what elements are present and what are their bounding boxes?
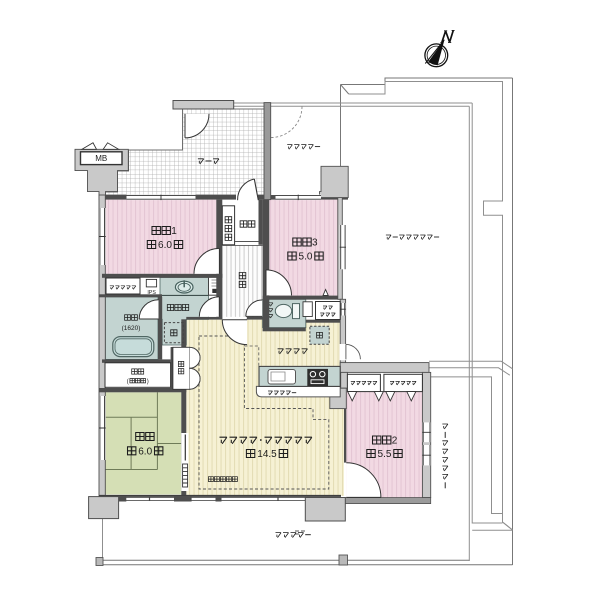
svg-text:14.5: 14.5 (257, 449, 277, 460)
svg-text:(: ( (127, 379, 129, 385)
svg-text:(1620): (1620) (122, 325, 141, 332)
svg-text:5.0: 5.0 (299, 252, 313, 263)
svg-text:MB: MB (95, 154, 107, 163)
svg-text:): ) (147, 379, 149, 385)
svg-text:1: 1 (171, 226, 177, 237)
svg-text:6.0: 6.0 (138, 446, 152, 457)
svg-text:IPS: IPS (147, 290, 156, 296)
svg-text:2: 2 (392, 436, 398, 447)
svg-text:6.0: 6.0 (158, 240, 172, 251)
svg-text:5.5: 5.5 (378, 449, 392, 460)
svg-text:3: 3 (312, 238, 318, 249)
